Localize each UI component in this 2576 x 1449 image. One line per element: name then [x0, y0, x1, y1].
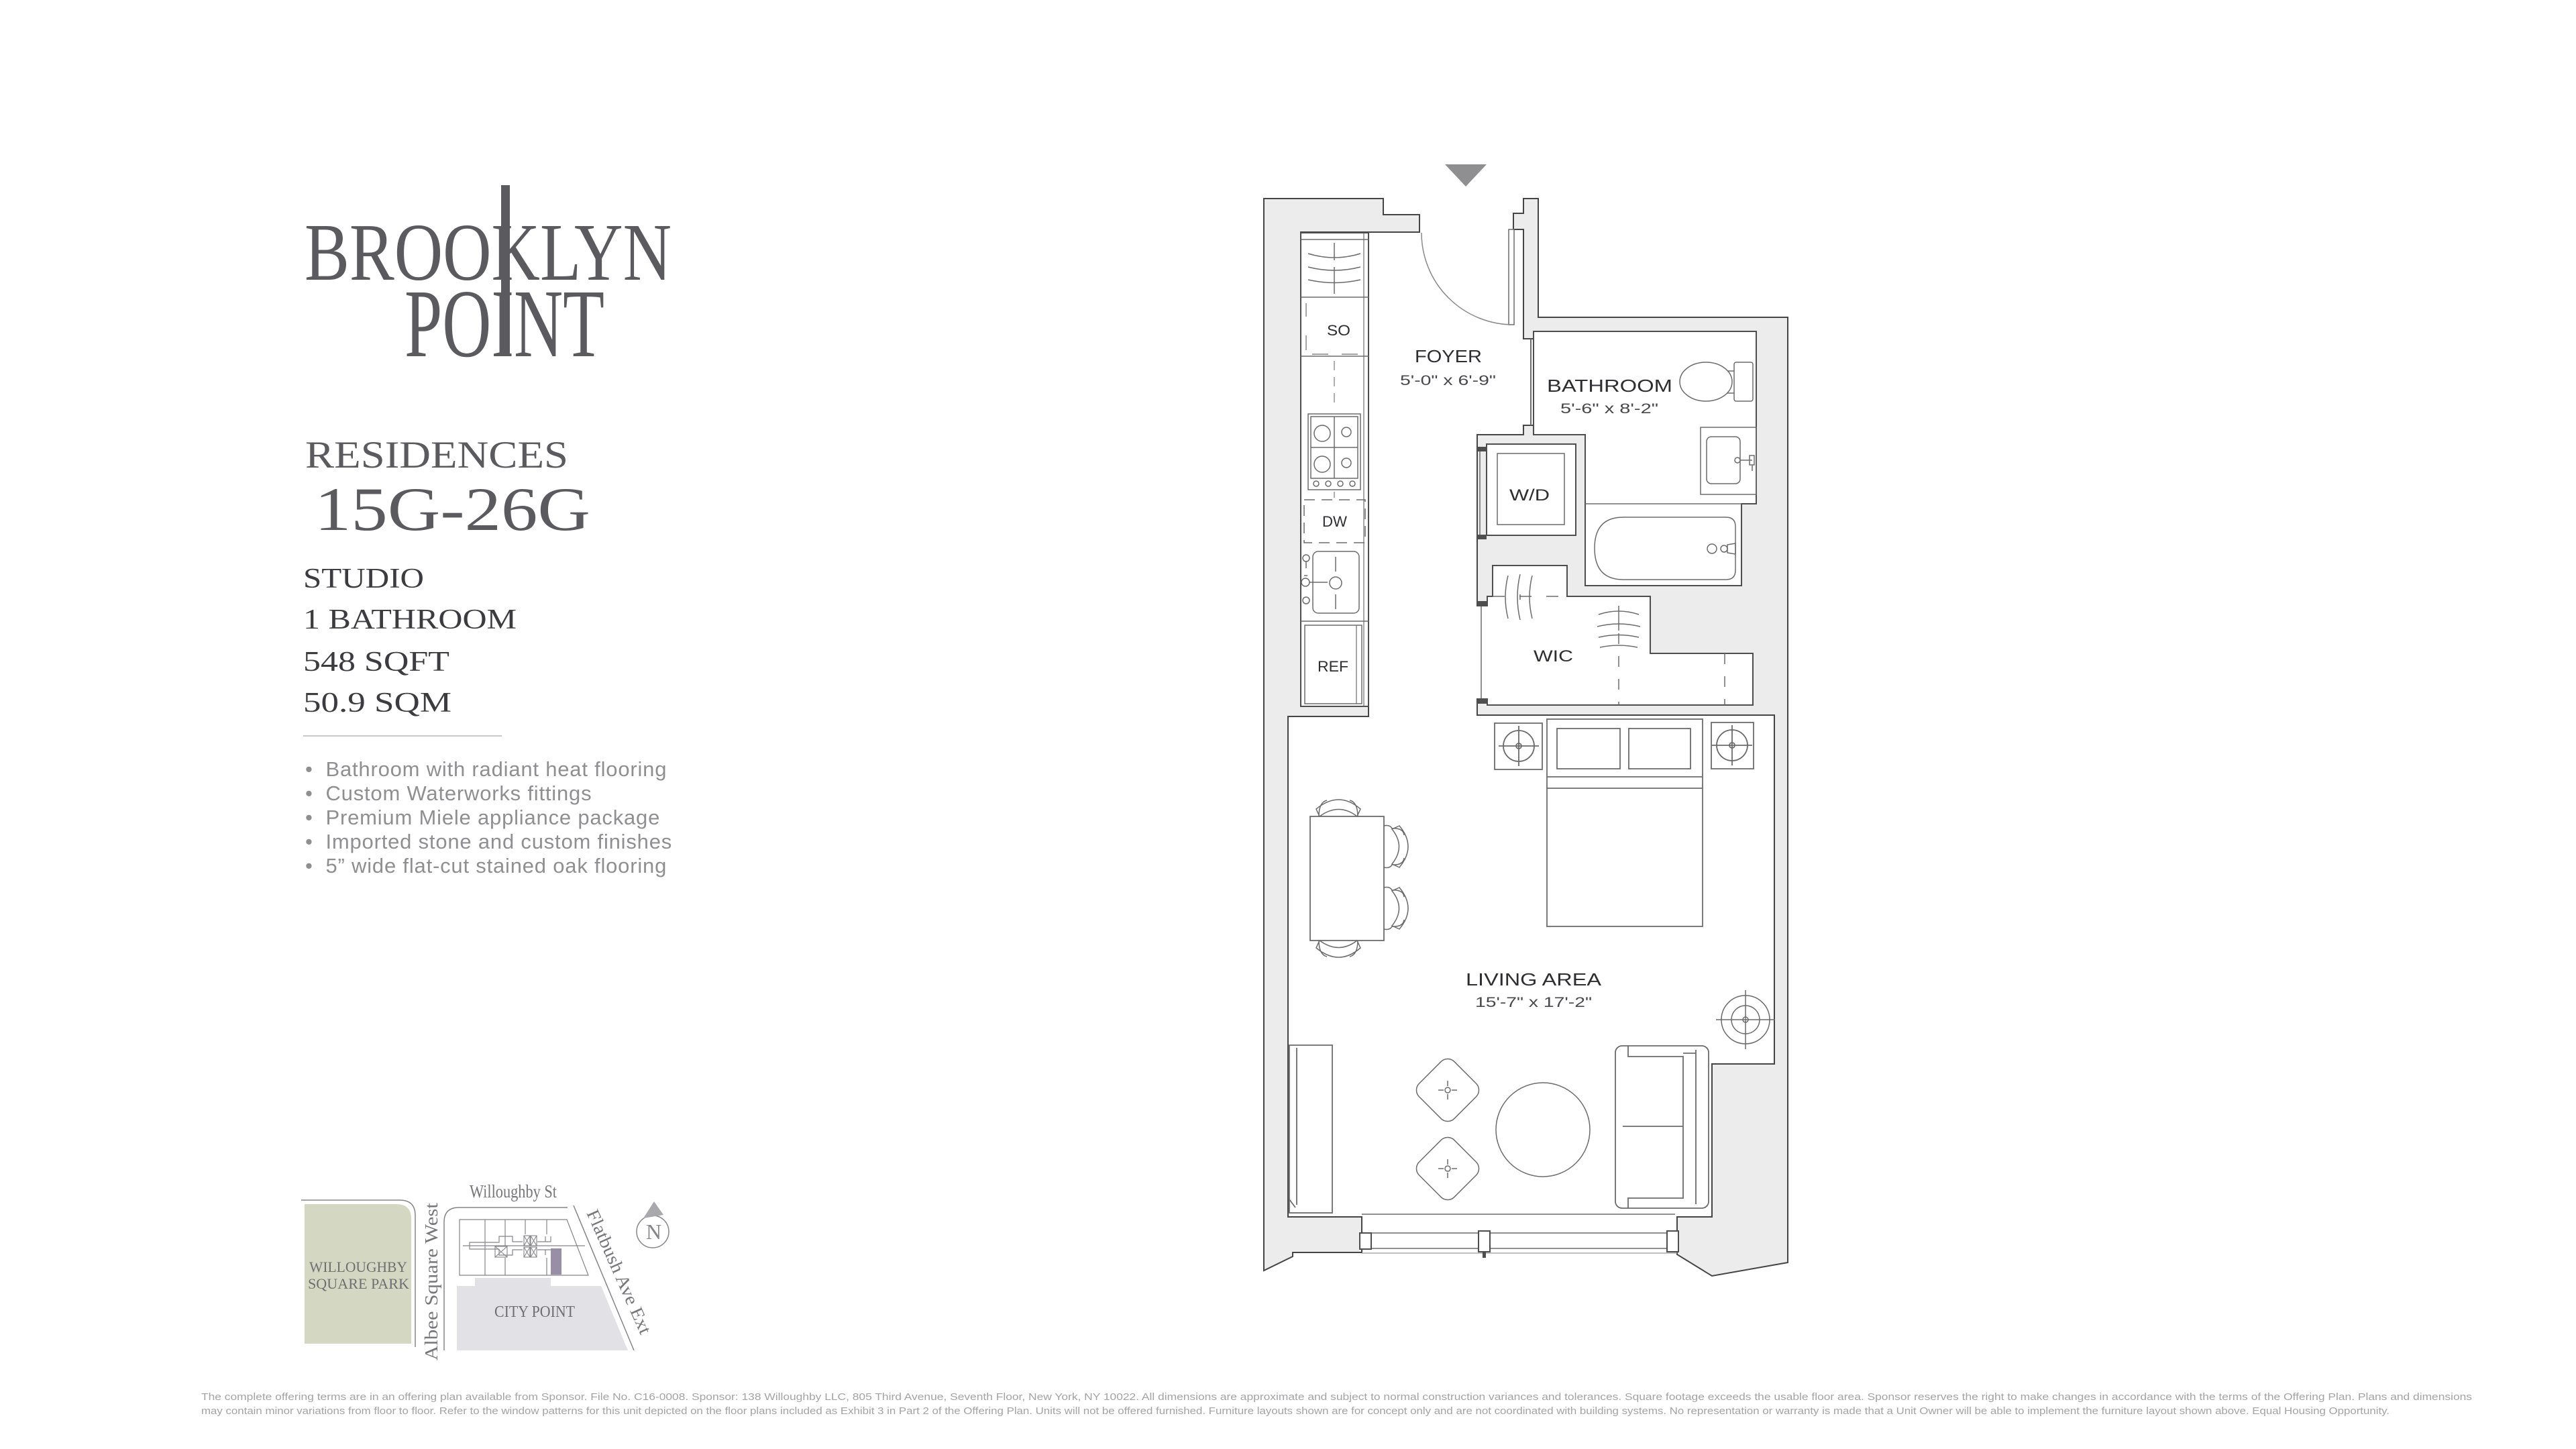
- svg-text:15'-7" x 17'-2": 15'-7" x 17'-2": [1475, 995, 1592, 1010]
- svg-text:REF: REF: [1318, 658, 1348, 675]
- svg-text:• Bathroom with radiant heat: • Bathroom with radiant heat flooring: [305, 757, 667, 781]
- svg-text:• 5” wide flat-cut stained oa: • 5” wide flat-cut stained oak flooring: [305, 854, 667, 877]
- svg-text:WIC: WIC: [1534, 647, 1573, 665]
- svg-text:• Premium Miele appliance pac: • Premium Miele appliance package: [305, 806, 660, 829]
- svg-text:WILLOUGHBY: WILLOUGHBY: [309, 1258, 407, 1275]
- svg-text:RESIDENCES: RESIDENCES: [305, 434, 568, 476]
- svg-text:5'-0" x 6'-9": 5'-0" x 6'-9": [1400, 373, 1496, 388]
- svg-text:• Imported stone and custom f: • Imported stone and custom finishes: [305, 830, 672, 853]
- svg-text:DW: DW: [1322, 513, 1347, 530]
- svg-text:548 SQFT: 548 SQFT: [303, 647, 449, 678]
- svg-text:50.9 SQM: 50.9 SQM: [303, 688, 451, 718]
- svg-text:The complete offering terms ar: The complete offering terms are in an of…: [201, 1391, 2472, 1403]
- svg-text:LIVING AREA: LIVING AREA: [1466, 969, 1602, 989]
- svg-text:SO: SO: [1327, 322, 1350, 339]
- svg-text:1 BATHROOM: 1 BATHROOM: [303, 604, 517, 635]
- svg-text:BATHROOM: BATHROOM: [1547, 376, 1672, 396]
- svg-text:Albee Square West: Albee Square West: [421, 1202, 441, 1360]
- svg-text:• Custom Waterworks fittings: • Custom Waterworks fittings: [305, 782, 592, 805]
- svg-text:SQUARE PARK: SQUARE PARK: [308, 1275, 409, 1292]
- svg-text:Willoughby St: Willoughby St: [470, 1181, 557, 1201]
- svg-text:N: N: [646, 1220, 661, 1244]
- svg-text:W/D: W/D: [1509, 486, 1550, 504]
- svg-text:15G-26G: 15G-26G: [315, 475, 590, 543]
- svg-text:FOYER: FOYER: [1415, 346, 1482, 366]
- svg-text:CITY POINT: CITY POINT: [494, 1303, 575, 1321]
- svg-text:may contain minor variations f: may contain minor variations from floor …: [201, 1405, 2390, 1417]
- svg-text:5'-6" x 8'-2": 5'-6" x 8'-2": [1560, 401, 1658, 417]
- svg-text:STUDIO: STUDIO: [303, 563, 424, 594]
